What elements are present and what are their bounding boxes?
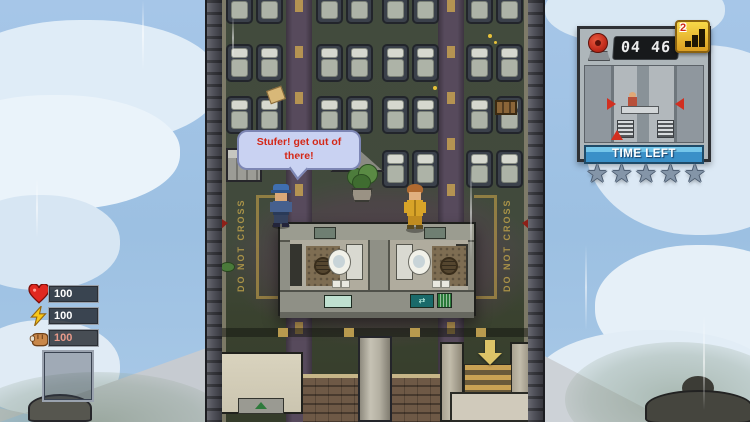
energy-value: 100 <box>48 307 99 325</box>
bathroom-wall-base <box>280 312 474 318</box>
airplane-seat[interactable] <box>346 44 373 82</box>
health-value: 100 <box>48 285 99 303</box>
guard-character[interactable] <box>270 184 292 229</box>
direction-sign: ⇄ <box>410 294 434 308</box>
toilet[interactable] <box>328 249 351 275</box>
airplane-seat[interactable] <box>382 44 409 82</box>
luggage[interactable] <box>495 100 517 115</box>
energy-icon <box>28 306 50 326</box>
airplane-seat[interactable] <box>412 96 439 134</box>
inmate-character[interactable] <box>404 184 426 233</box>
coin-speck <box>488 34 492 38</box>
star-rating: ★★★★★ <box>578 160 714 188</box>
strength-icon <box>28 328 50 348</box>
airplane-seat[interactable] <box>256 0 283 24</box>
airplane-seat[interactable] <box>226 96 253 134</box>
cabin-pillar <box>358 336 392 422</box>
airplane-seat[interactable] <box>412 0 439 24</box>
airplane-fuselage: DO NOT CROSS DO NOT CROSS <box>205 0 545 422</box>
airplane-seat[interactable] <box>226 0 253 24</box>
exit-sign <box>437 293 452 308</box>
stair-platform <box>450 392 535 422</box>
airplane-seat[interactable] <box>346 96 373 134</box>
airplane-seat[interactable] <box>382 0 409 24</box>
airplane-seat[interactable] <box>496 0 523 24</box>
minimap-player <box>628 97 637 106</box>
multiplier-badge: 2 <box>675 20 710 53</box>
star-icon: ★ <box>684 160 706 188</box>
star-icon: ★ <box>586 160 608 188</box>
airplane-seat[interactable] <box>226 44 253 82</box>
stall-divider-wall <box>368 240 390 290</box>
duffel-bag <box>220 262 235 272</box>
stall-door-opening[interactable] <box>290 244 302 286</box>
fuselage-wall-right <box>528 0 545 422</box>
airplane-seat[interactable] <box>412 150 439 188</box>
brown-wall <box>392 374 440 422</box>
airplane-seat[interactable] <box>496 44 523 82</box>
airplane-seat[interactable] <box>466 96 493 134</box>
minimap-bench <box>621 106 659 114</box>
floor-marking-bracket <box>474 195 497 299</box>
bathroom-stall-right <box>390 240 468 290</box>
minimap-arrow-icon <box>607 98 616 110</box>
star-icon: ★ <box>610 160 632 188</box>
airplane-seat[interactable] <box>496 150 523 188</box>
airplane-seat[interactable] <box>316 0 343 24</box>
right-engine <box>645 390 750 422</box>
speech-bubble: Stufer! get out of there! <box>237 130 361 170</box>
minimap-vent <box>657 120 674 138</box>
airplane-seat[interactable] <box>316 96 343 134</box>
airplane-seat[interactable] <box>466 150 493 188</box>
floor-marking-right: DO NOT CROSS <box>502 200 512 292</box>
mirror <box>424 227 446 239</box>
airplane-seat[interactable] <box>382 96 409 134</box>
airplane-seat[interactable] <box>346 0 373 24</box>
airplane-seat[interactable] <box>316 44 343 82</box>
airplane-seat[interactable] <box>412 44 439 82</box>
cloud <box>0 195 120 290</box>
countdown-clock: 04 46 <box>612 36 680 60</box>
mirror <box>314 227 336 239</box>
star-icon: ★ <box>635 160 657 188</box>
brown-wall <box>303 374 358 422</box>
star-icon: ★ <box>659 160 681 188</box>
bathroom-stall-left <box>290 240 368 290</box>
airplane-seat[interactable] <box>382 150 409 188</box>
coin-speck <box>494 41 497 44</box>
multiplier-value: 2 <box>680 22 686 34</box>
bathroom-block: ⇄ <box>278 222 476 316</box>
floor-marking-left: DO NOT CROSS <box>236 200 246 292</box>
fuselage-wall-left <box>205 0 222 422</box>
health-icon <box>28 284 50 304</box>
toilet[interactable] <box>408 249 431 275</box>
minimap-arrow-icon <box>611 130 623 140</box>
alarm-bell-icon <box>585 33 611 61</box>
airplane-seat[interactable] <box>466 0 493 24</box>
minimap <box>584 65 704 143</box>
minimap-lane <box>637 66 649 142</box>
airplane-seat[interactable] <box>466 44 493 82</box>
game-screen[interactable]: DO NOT CROSS DO NOT CROSS <box>0 0 750 422</box>
guard-face <box>275 193 287 201</box>
coin-speck <box>433 86 437 90</box>
strength-value: 100 <box>48 329 99 347</box>
galley-unit[interactable] <box>212 352 303 414</box>
toilets-sign <box>324 295 352 308</box>
exit-down-arrow-icon <box>478 340 502 366</box>
airplane-seat[interactable] <box>256 44 283 82</box>
minimap-arrow-icon <box>675 98 684 110</box>
item-slot <box>42 350 94 402</box>
inmate-face <box>409 192 421 200</box>
